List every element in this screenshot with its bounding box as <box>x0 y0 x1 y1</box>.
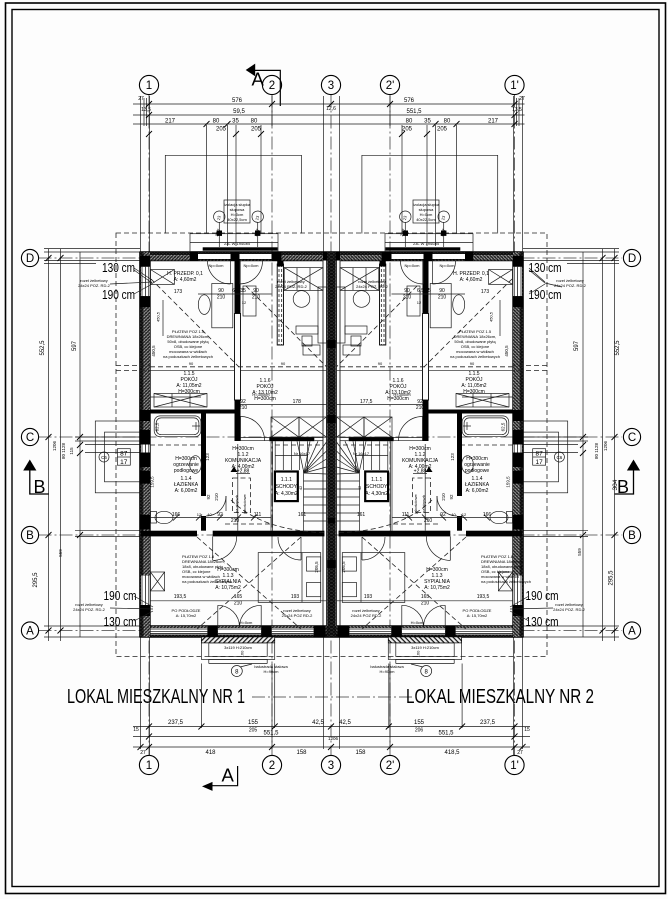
svg-text:2: 2 <box>269 760 275 772</box>
svg-text:C6: C6 <box>101 455 107 460</box>
svg-text:LOKAL MIESZKALNY NR 2: LOKAL MIESZKALNY NR 2 <box>406 685 594 708</box>
svg-text:na stryszk: na stryszk <box>421 495 426 513</box>
svg-text:210: 210 <box>217 295 226 301</box>
svg-text:12: 12 <box>417 300 422 305</box>
svg-text:A: 6,00m2: A: 6,00m2 <box>466 488 489 494</box>
svg-text:3: 3 <box>328 80 334 92</box>
svg-text:551,5: 551,5 <box>438 731 454 737</box>
svg-text:40: 40 <box>207 512 212 517</box>
svg-text:130 cm: 130 cm <box>104 614 137 629</box>
svg-text:17: 17 <box>120 459 128 466</box>
svg-text:D: D <box>26 253 34 265</box>
svg-text:H=0cm: H=0cm <box>411 620 424 625</box>
svg-text:210: 210 <box>424 518 433 524</box>
svg-text:A: 4,60m2: A: 4,60m2 <box>460 277 483 283</box>
svg-text:3x119 H:210cm: 3x119 H:210cm <box>411 645 439 650</box>
svg-text:597: 597 <box>574 340 580 351</box>
svg-text:na poduszkach żelbetowych: na poduszkach żelbetowych <box>450 354 500 359</box>
svg-text:161: 161 <box>298 512 307 518</box>
svg-text:92: 92 <box>206 494 211 500</box>
svg-text:80: 80 <box>251 119 258 125</box>
svg-text:159,5: 159,5 <box>150 476 155 488</box>
svg-text:210: 210 <box>421 601 430 607</box>
svg-text:C: C <box>628 432 636 444</box>
svg-text:80 1128: 80 1128 <box>61 443 66 459</box>
svg-text:42,5: 42,5 <box>312 720 324 726</box>
svg-text:80: 80 <box>444 119 451 125</box>
svg-text:27: 27 <box>140 750 146 756</box>
svg-text:92: 92 <box>440 512 446 518</box>
svg-text:C: C <box>26 432 34 444</box>
svg-text:24x24 POZ. RD-2: 24x24 POZ. RD-2 <box>78 283 111 288</box>
svg-text:24x24 POZ. RD-2: 24x24 POZ. RD-2 <box>73 607 106 612</box>
svg-text:H=300cm: H=300cm <box>393 392 411 397</box>
svg-text:SCHODY: SCHODY <box>366 484 388 490</box>
svg-text:190 cm: 190 cm <box>529 287 562 302</box>
svg-text:217: 217 <box>165 119 176 125</box>
svg-text:na stryszk: na stryszk <box>234 495 239 513</box>
svg-text:205: 205 <box>437 127 448 133</box>
svg-text:205: 205 <box>249 728 258 734</box>
svg-text:210: 210 <box>252 295 261 301</box>
svg-text:POKÓJ: POKÓJ <box>390 383 407 390</box>
svg-text:H=300cm: H=300cm <box>252 392 270 397</box>
svg-text:450,5: 450,5 <box>156 311 161 322</box>
svg-text:POKÓJ: POKÓJ <box>466 376 483 383</box>
svg-text:450,5: 450,5 <box>151 345 156 357</box>
svg-text:LOKAL MIESZKALNY NR 1: LOKAL MIESZKALNY NR 1 <box>67 685 245 708</box>
svg-text:A: A <box>628 626 636 638</box>
svg-text:165: 165 <box>234 594 243 600</box>
svg-text:155: 155 <box>414 720 425 726</box>
svg-text:6,5 35: 6,5 35 <box>417 288 431 294</box>
svg-text:24x24 POZ. RD-2: 24x24 POZ. RD-2 <box>356 284 389 289</box>
svg-text:159,5: 159,5 <box>506 476 511 488</box>
svg-text:123: 123 <box>205 453 210 461</box>
svg-text:178: 178 <box>293 399 302 405</box>
svg-text:A: 4,30m2: A: 4,30m2 <box>275 491 298 497</box>
svg-text:59,5: 59,5 <box>233 109 245 115</box>
svg-text:12: 12 <box>197 512 202 517</box>
svg-text:210: 210 <box>214 493 219 501</box>
svg-text:+2,88: +2,88 <box>237 469 250 475</box>
svg-text:559: 559 <box>58 549 63 557</box>
svg-text:A: 15,70m2: A: 15,70m2 <box>467 613 488 618</box>
svg-text:23L W 1940zB: 23L W 1940zB <box>413 241 439 246</box>
svg-text:35: 35 <box>424 119 431 125</box>
svg-text:35: 35 <box>232 119 239 125</box>
svg-text:190 cm: 190 cm <box>104 588 137 603</box>
svg-text:295,5: 295,5 <box>609 570 615 586</box>
svg-text:130 cm: 130 cm <box>102 260 135 275</box>
svg-text:1': 1' <box>510 80 519 92</box>
svg-text:551,5: 551,5 <box>263 731 279 737</box>
svg-text:Nr 16x17: Nr 16x17 <box>294 451 311 456</box>
svg-text:177,5: 177,5 <box>360 399 373 405</box>
svg-text:42: 42 <box>357 485 362 490</box>
svg-text:Np=0cm: Np=0cm <box>439 263 455 268</box>
svg-text:210: 210 <box>416 405 425 411</box>
svg-text:165: 165 <box>421 594 430 600</box>
svg-text:166: 166 <box>483 512 492 518</box>
svg-text:na poduszkach żelbetowych: na poduszkach żelbetowych <box>481 579 531 584</box>
svg-text:podłogowe: podłogowe <box>174 468 198 474</box>
svg-text:1.1.1: 1.1.1 <box>281 477 292 483</box>
svg-text:2: 2 <box>269 80 275 92</box>
svg-text:205: 205 <box>251 127 262 133</box>
svg-text:24x24 POZ. RD-2: 24x24 POZ. RD-2 <box>553 607 586 612</box>
svg-text:130 cm: 130 cm <box>526 614 559 629</box>
svg-text:90: 90 <box>281 361 286 366</box>
svg-text:210: 210 <box>403 295 412 301</box>
svg-text:23L W 1940zB: 23L W 1940zB <box>224 241 250 246</box>
svg-text:A: 6,00m2: A: 6,00m2 <box>175 488 198 494</box>
svg-text:193,5: 193,5 <box>477 594 490 600</box>
svg-text:Np=0cm: Np=0cm <box>208 263 224 268</box>
svg-text:237,5: 237,5 <box>168 720 184 726</box>
svg-text:1206: 1206 <box>603 440 608 451</box>
svg-text:B: B <box>628 530 636 542</box>
svg-text:551,5: 551,5 <box>406 109 422 115</box>
svg-text:158: 158 <box>355 750 366 756</box>
svg-text:123: 123 <box>450 453 455 461</box>
svg-text:304: 304 <box>612 479 619 490</box>
svg-text:160: 160 <box>416 650 421 657</box>
svg-text:205: 205 <box>402 127 413 133</box>
svg-text:166: 166 <box>172 512 181 518</box>
svg-text:A: A <box>252 69 265 90</box>
svg-text:40: 40 <box>451 512 456 517</box>
svg-text:193: 193 <box>291 594 300 600</box>
svg-text:6,5 35: 6,5 35 <box>232 288 246 294</box>
svg-text:H=0cm: H=0cm <box>240 620 253 625</box>
svg-text:205: 205 <box>216 127 227 133</box>
svg-text:193: 193 <box>364 594 373 600</box>
svg-text:210: 210 <box>441 493 446 501</box>
svg-text:217: 217 <box>488 119 499 125</box>
svg-text:205,5: 205,5 <box>314 561 319 573</box>
svg-text:552,5: 552,5 <box>40 340 46 356</box>
svg-text:155: 155 <box>248 720 259 726</box>
svg-text:1': 1' <box>510 760 519 772</box>
svg-text:1206: 1206 <box>328 736 339 741</box>
svg-text:A: 15,70m2: A: 15,70m2 <box>176 613 197 618</box>
svg-text:210: 210 <box>231 518 240 524</box>
svg-text:295,5: 295,5 <box>33 572 39 588</box>
svg-text:3: 3 <box>328 760 334 772</box>
svg-text:111: 111 <box>402 512 410 518</box>
svg-text:12: 12 <box>462 512 467 517</box>
svg-text:A: 4,60m2: A: 4,60m2 <box>174 277 197 283</box>
svg-text:1: 1 <box>146 760 152 772</box>
svg-text:90: 90 <box>253 288 259 294</box>
svg-text:42,5: 42,5 <box>339 720 351 726</box>
svg-text:130 cm: 130 cm <box>529 260 562 275</box>
svg-text:210: 210 <box>234 601 243 607</box>
svg-text:87: 87 <box>535 451 543 458</box>
svg-text:206: 206 <box>415 728 424 734</box>
svg-text:62,5: 62,5 <box>501 422 506 431</box>
svg-text:190 cm: 190 cm <box>526 588 559 603</box>
svg-text:24x24 POZ RD-2: 24x24 POZ RD-2 <box>282 613 313 618</box>
svg-text:210: 210 <box>239 405 248 411</box>
svg-text:POKÓJ: POKÓJ <box>257 383 274 390</box>
svg-text:90: 90 <box>218 288 224 294</box>
svg-text:90: 90 <box>470 361 475 366</box>
svg-text:Np=0cm: Np=0cm <box>243 263 259 268</box>
svg-text:A: A <box>26 626 34 638</box>
svg-text:24x24 POZ. RD-2: 24x24 POZ. RD-2 <box>554 283 587 288</box>
svg-text:552,5: 552,5 <box>615 340 621 356</box>
svg-text:210: 210 <box>438 295 447 301</box>
svg-text:2': 2' <box>386 760 395 772</box>
svg-text:12,6: 12,6 <box>326 106 336 112</box>
svg-text:B: B <box>26 530 34 542</box>
svg-text:+2,88: +2,88 <box>414 469 427 475</box>
svg-text:205,5: 205,5 <box>341 561 346 573</box>
svg-text:193,5: 193,5 <box>174 594 187 600</box>
svg-text:559: 559 <box>577 548 582 556</box>
svg-text:POKÓJ: POKÓJ <box>181 376 198 383</box>
svg-text:92: 92 <box>217 512 223 518</box>
svg-text:418: 418 <box>205 750 216 756</box>
svg-text:80 1128: 80 1128 <box>594 443 599 459</box>
svg-text:15: 15 <box>133 727 139 733</box>
svg-text:450,5: 450,5 <box>489 311 494 322</box>
svg-text:115: 115 <box>69 447 74 455</box>
svg-text:27: 27 <box>519 96 525 102</box>
svg-text:Nr 16x17: Nr 16x17 <box>353 451 370 456</box>
svg-text:27: 27 <box>517 750 523 756</box>
svg-text:13,5: 13,5 <box>141 107 151 113</box>
svg-text:1.1.1: 1.1.1 <box>371 477 382 483</box>
svg-text:B: B <box>34 477 46 497</box>
svg-text:A: A <box>222 765 235 786</box>
svg-text:173: 173 <box>481 289 490 295</box>
svg-text:111: 111 <box>254 512 262 518</box>
svg-text:15: 15 <box>524 727 530 733</box>
svg-text:A: 10,75m2: A: 10,75m2 <box>424 585 450 591</box>
svg-text:576: 576 <box>232 98 243 104</box>
svg-text:597: 597 <box>72 340 78 351</box>
svg-text:24x24 POZ RD-2: 24x24 POZ RD-2 <box>351 613 382 618</box>
svg-text:576: 576 <box>404 98 415 104</box>
svg-text:SCHODY: SCHODY <box>276 484 298 490</box>
svg-text:24x24 POZ. RD-2: 24x24 POZ. RD-2 <box>275 284 308 289</box>
svg-text:jakościowe: jakościowe <box>242 493 247 514</box>
svg-text:92: 92 <box>449 494 454 500</box>
svg-text:160: 160 <box>240 650 245 657</box>
svg-text:190 cm: 190 cm <box>102 287 135 302</box>
svg-text:H=90cm: H=90cm <box>263 669 279 674</box>
svg-text:17: 17 <box>535 459 543 466</box>
svg-text:jakościowe: jakościowe <box>413 493 418 514</box>
svg-text:podłogowe: podłogowe <box>465 468 489 474</box>
svg-text:H=300cm: H=300cm <box>178 389 200 395</box>
svg-text:1: 1 <box>146 80 152 92</box>
svg-text:40x22,5cm: 40x22,5cm <box>227 217 247 222</box>
svg-text:42: 42 <box>298 485 303 490</box>
svg-text:na poduszkach żelbetowych: na poduszkach żelbetowych <box>163 354 213 359</box>
svg-text:27: 27 <box>138 96 144 102</box>
svg-text:40x22,5cm: 40x22,5cm <box>416 217 436 222</box>
svg-text:H=300cm: H=300cm <box>463 389 485 395</box>
svg-text:173: 173 <box>174 289 183 295</box>
svg-text:A: 4,30m2: A: 4,30m2 <box>365 491 388 497</box>
svg-text:H=90cm: H=90cm <box>379 669 395 674</box>
svg-text:Np=0cm: Np=0cm <box>404 263 420 268</box>
svg-text:237,5: 237,5 <box>480 720 496 726</box>
svg-text:90: 90 <box>189 361 194 366</box>
svg-text:450,5: 450,5 <box>504 345 509 357</box>
svg-text:80: 80 <box>406 119 413 125</box>
svg-text:161: 161 <box>357 512 366 518</box>
svg-text:C6: C6 <box>557 455 563 460</box>
svg-text:1206: 1206 <box>52 440 57 451</box>
svg-text:90: 90 <box>439 288 445 294</box>
svg-text:90: 90 <box>404 288 410 294</box>
svg-text:na poduszkach żelbetowych: na poduszkach żelbetowych <box>182 579 232 584</box>
svg-text:158: 158 <box>296 750 307 756</box>
svg-text:90: 90 <box>378 361 383 366</box>
svg-text:3x119 H:210cm: 3x119 H:210cm <box>224 645 252 650</box>
svg-text:418,5: 418,5 <box>444 750 460 756</box>
svg-text:80: 80 <box>213 119 220 125</box>
svg-text:12: 12 <box>242 300 247 305</box>
svg-text:87: 87 <box>120 451 128 458</box>
svg-text:62,5: 62,5 <box>155 422 160 431</box>
svg-text:D: D <box>628 253 636 265</box>
svg-text:A: 10,75m2: A: 10,75m2 <box>215 585 241 591</box>
svg-text:2': 2' <box>386 80 395 92</box>
